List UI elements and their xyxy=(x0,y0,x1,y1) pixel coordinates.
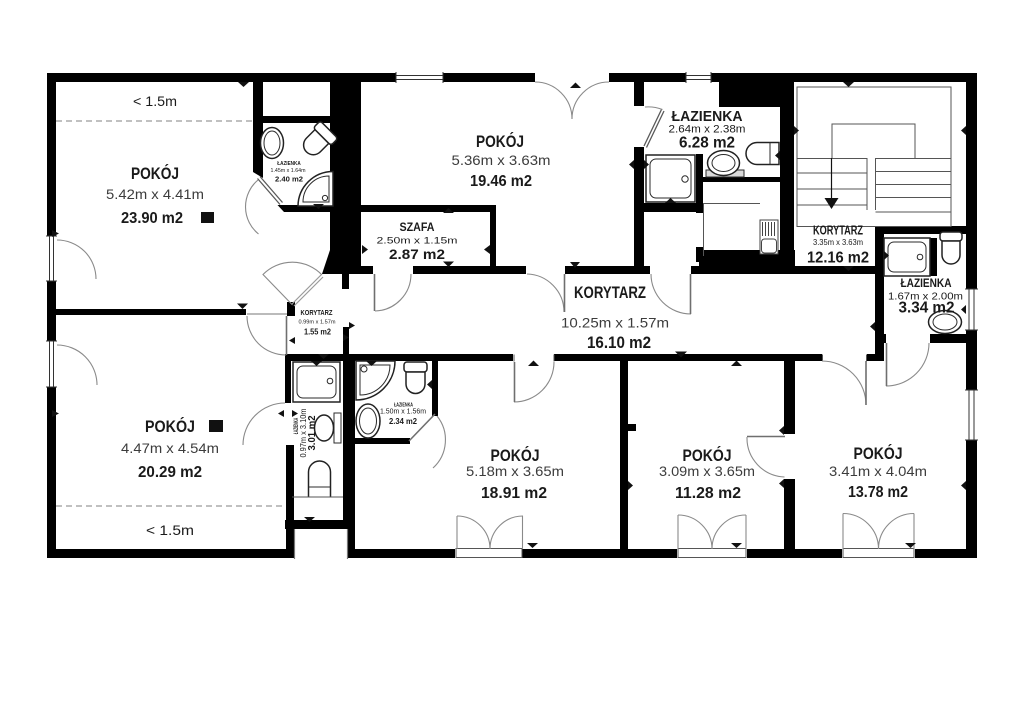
svg-text:2.40 m2: 2.40 m2 xyxy=(275,175,303,184)
svg-text:POKÓJ: POKÓJ xyxy=(854,444,903,463)
svg-text:2.87 m2: 2.87 m2 xyxy=(389,247,445,262)
svg-text:POKÓJ: POKÓJ xyxy=(131,164,179,183)
svg-text:KORYTARZ: KORYTARZ xyxy=(301,310,334,317)
svg-text:1.50m x 1.56m: 1.50m x 1.56m xyxy=(380,409,426,416)
svg-text:5.42m x 4.41m: 5.42m x 4.41m xyxy=(106,186,204,202)
svg-text:2.50m x 1.15m: 2.50m x 1.15m xyxy=(377,236,458,246)
svg-text:18.91 m2: 18.91 m2 xyxy=(481,485,547,502)
svg-text:3.41m x 4.04m: 3.41m x 4.04m xyxy=(829,463,927,479)
svg-text:13.78 m2: 13.78 m2 xyxy=(848,484,908,501)
svg-text:< 1.5m: < 1.5m xyxy=(133,94,177,109)
svg-text:0.99m x 1.57m: 0.99m x 1.57m xyxy=(299,320,336,326)
svg-text:3.09m x 3.65m: 3.09m x 3.65m xyxy=(659,463,755,479)
svg-text:3.01 m2: 3.01 m2 xyxy=(307,415,318,450)
svg-text:5.36m x 3.63m: 5.36m x 3.63m xyxy=(452,152,551,168)
svg-text:ŁAZIENKA: ŁAZIENKA xyxy=(672,108,743,125)
svg-text:1.45m x 1.64m: 1.45m x 1.64m xyxy=(271,168,306,174)
svg-text:POKÓJ: POKÓJ xyxy=(145,417,195,436)
svg-text:16.10 m2: 16.10 m2 xyxy=(587,333,651,352)
svg-text:12.16 m2: 12.16 m2 xyxy=(807,250,869,267)
svg-text:23.90 m2: 23.90 m2 xyxy=(121,210,183,227)
svg-text:ŁAZIENKA: ŁAZIENKA xyxy=(277,161,301,167)
svg-text:19.46 m2: 19.46 m2 xyxy=(470,173,532,190)
svg-text:2.34 m2: 2.34 m2 xyxy=(389,416,417,426)
svg-text:5.18m x 3.65m: 5.18m x 3.65m xyxy=(466,463,564,479)
svg-text:ŁAZIENKA: ŁAZIENKA xyxy=(901,276,952,290)
svg-text:KORYTARZ: KORYTARZ xyxy=(574,283,646,302)
svg-text:20.29 m2: 20.29 m2 xyxy=(138,464,202,481)
svg-text:4.47m x 4.54m: 4.47m x 4.54m xyxy=(121,440,219,456)
svg-text:< 1.5m: < 1.5m xyxy=(146,522,194,538)
svg-text:6.28 m2: 6.28 m2 xyxy=(679,135,735,152)
svg-text:3.34 m2: 3.34 m2 xyxy=(899,300,955,317)
svg-text:KORYTARZ: KORYTARZ xyxy=(813,223,863,238)
svg-text:3.35m x 3.63m: 3.35m x 3.63m xyxy=(813,237,863,247)
svg-text:11.28 m2: 11.28 m2 xyxy=(675,485,741,502)
svg-text:10.25m x 1.57m: 10.25m x 1.57m xyxy=(561,315,669,331)
svg-text:SZAFA: SZAFA xyxy=(400,220,435,234)
svg-text:1.55 m2: 1.55 m2 xyxy=(304,328,332,337)
svg-text:POKÓJ: POKÓJ xyxy=(476,132,524,151)
